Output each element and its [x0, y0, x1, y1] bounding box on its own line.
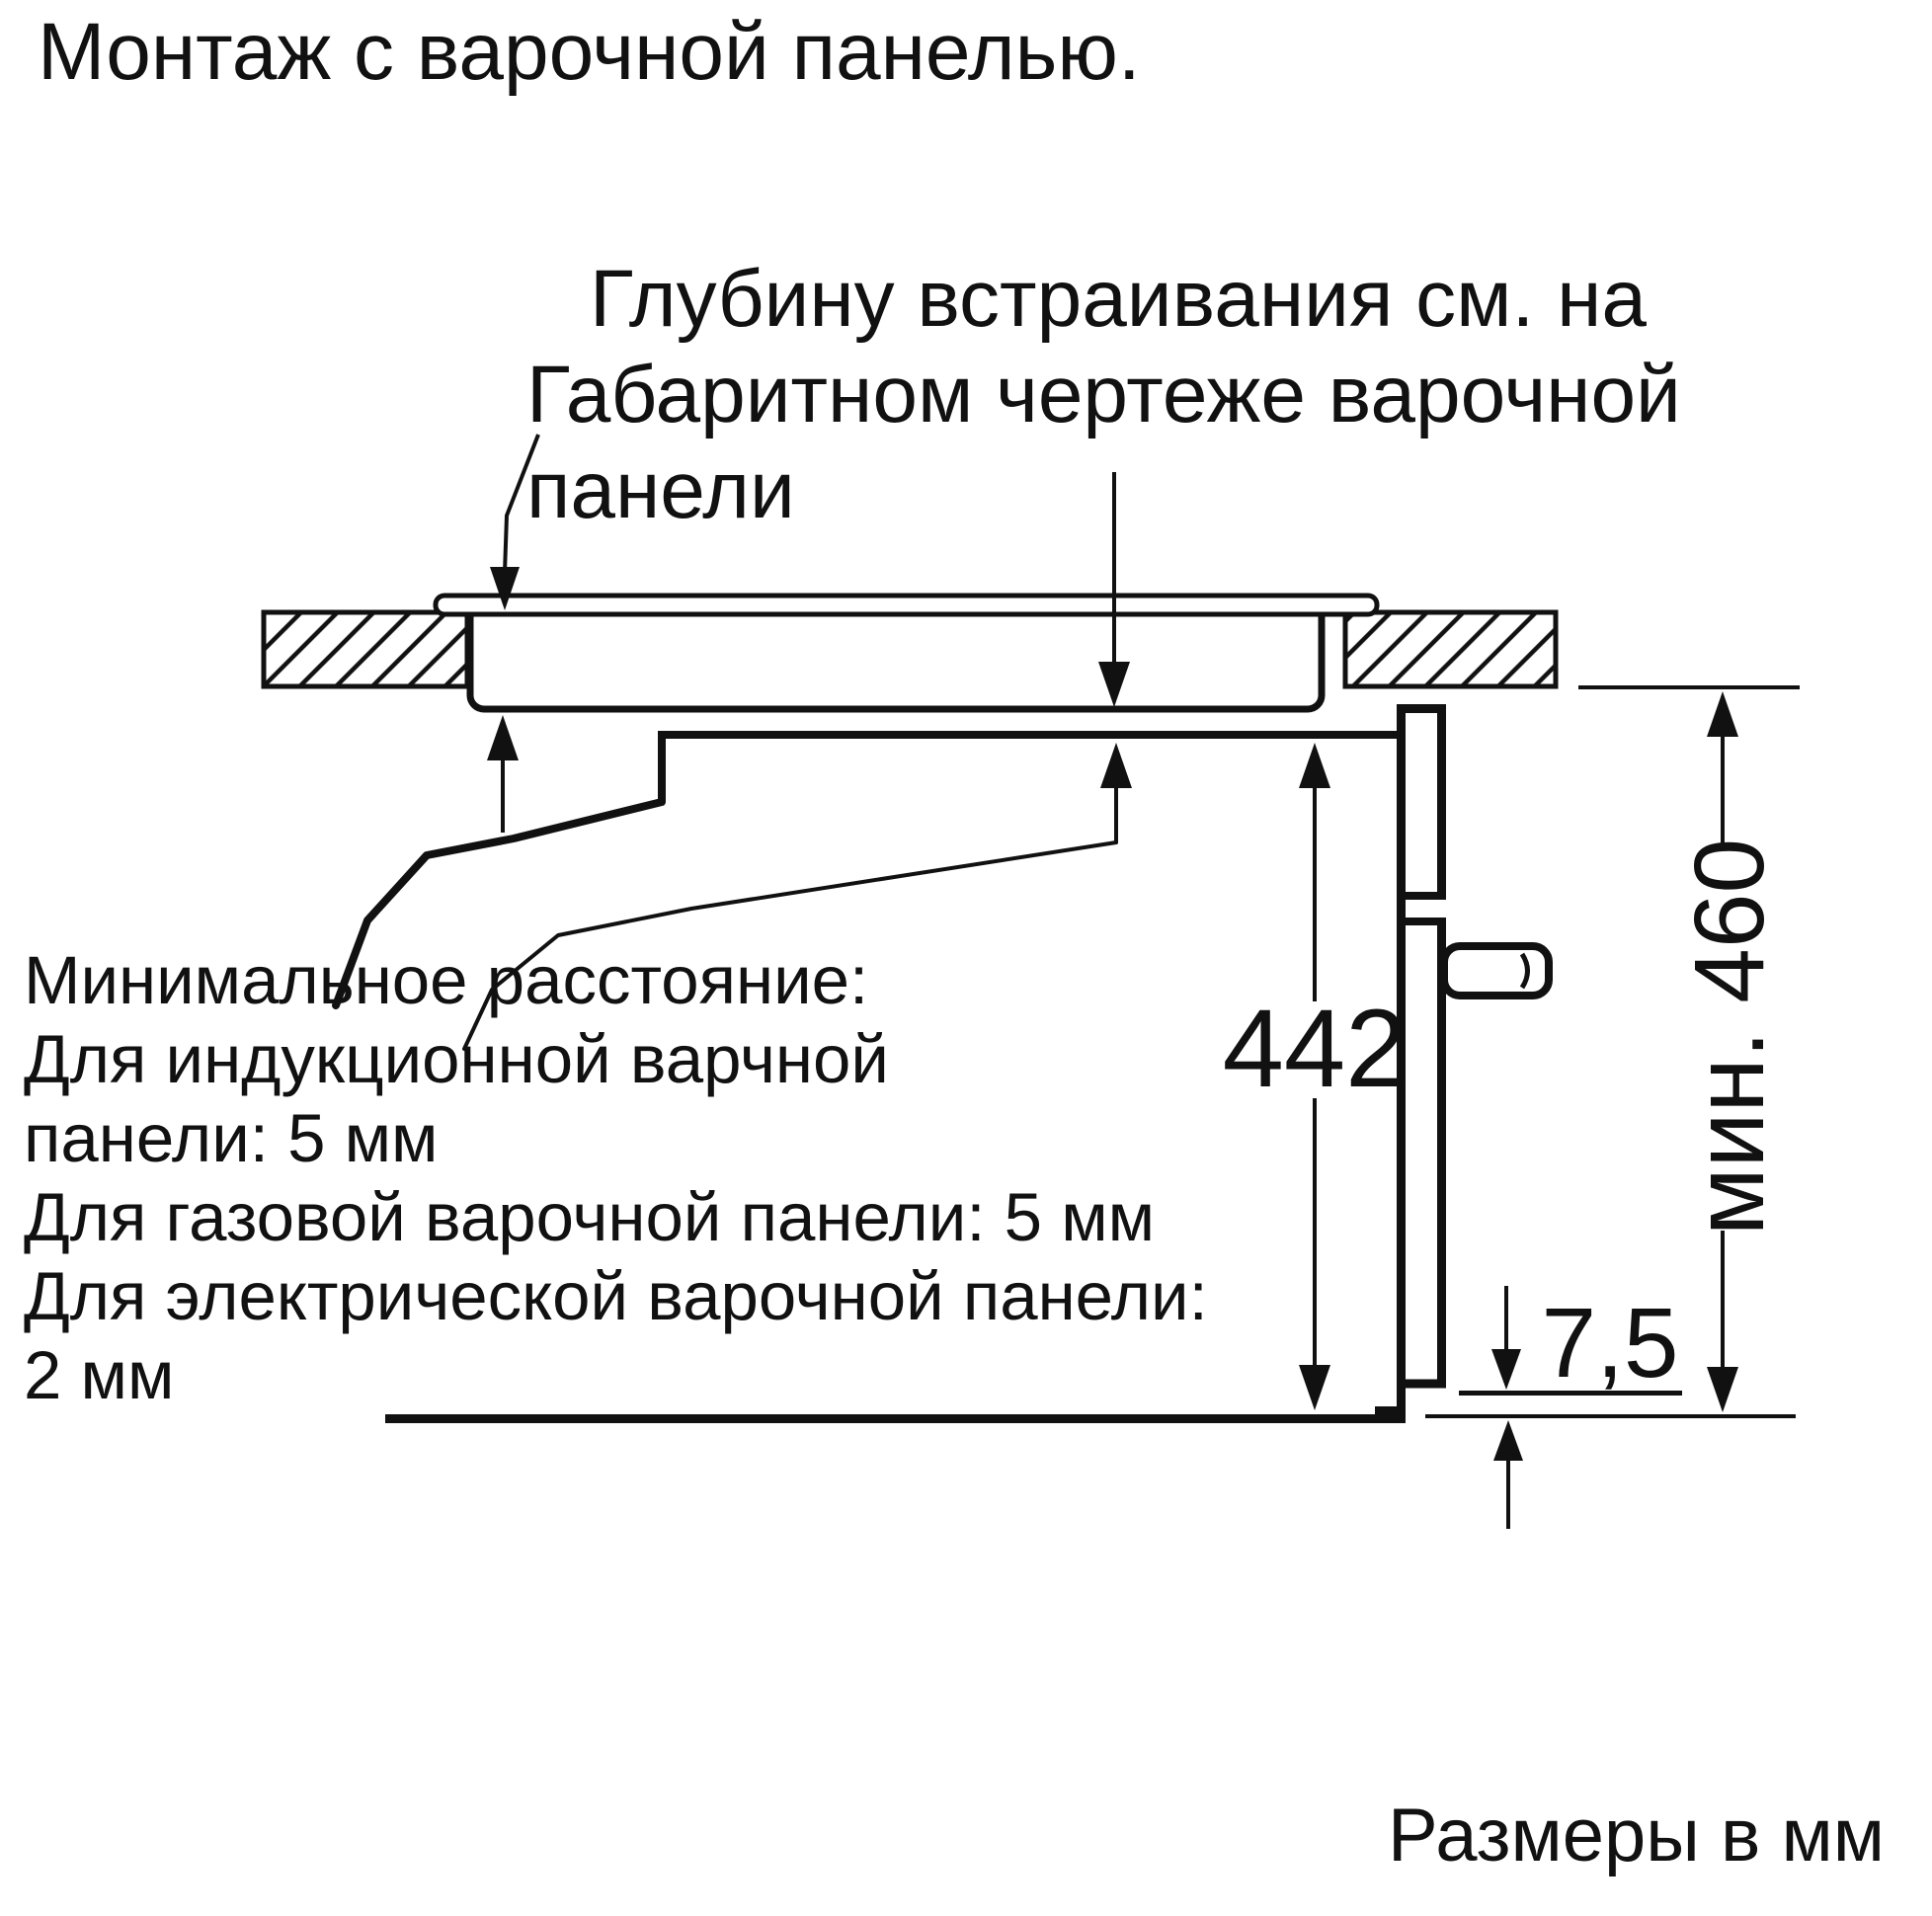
countertop-left-section [264, 612, 467, 686]
units-note: Размеры в мм [1388, 1794, 1885, 1877]
note-line-5: Для электрической варочной панели: [24, 1258, 1208, 1334]
dim-442-label: 442 [1223, 987, 1408, 1110]
dim-442-bottom-arrowhead [1299, 1365, 1330, 1410]
note-line-4: Для газовой варочной панели: 5 мм [24, 1179, 1155, 1255]
note-line-1: Минимальное расстояние: [24, 942, 868, 1018]
dim-75-label: 7,5 [1541, 1288, 1678, 1398]
dim-75-up-arrowhead [1493, 1420, 1523, 1461]
dim-460-label: мин. 460 [1674, 838, 1785, 1236]
note-line-3: панели: 5 мм [24, 1100, 439, 1176]
hob-oven-installation-diagram: Монтаж с варочной панелью. Глубину встра… [0, 0, 1932, 1916]
dim-460-bottom-arrowhead [1707, 1367, 1738, 1412]
countertop-right-section [1345, 612, 1556, 686]
dim-442-top-arrowhead [1299, 743, 1330, 788]
callout-line-1: Глубину встраивания см. на [590, 254, 1647, 344]
dim-75-down-arrowhead [1491, 1349, 1521, 1390]
hob-glass-panel [436, 596, 1377, 614]
installation-drawing-page: Монтаж с варочной панелью. Глубину встра… [0, 0, 1932, 1916]
control-knob [1444, 946, 1549, 996]
note-line-6: 2 мм [24, 1337, 174, 1413]
min-distance-left-arrowhead [487, 715, 519, 760]
min-distance-right-arrowhead [1100, 743, 1132, 788]
callout-line-3: панели [526, 445, 795, 535]
note-line-2: Для индукционной варчной [24, 1021, 889, 1097]
dim-460-top-arrowhead [1707, 691, 1738, 737]
callout-line-2: Габаритном чертеже варочной [526, 350, 1681, 439]
page-title: Монтаж с варочной панелью. [38, 7, 1141, 97]
